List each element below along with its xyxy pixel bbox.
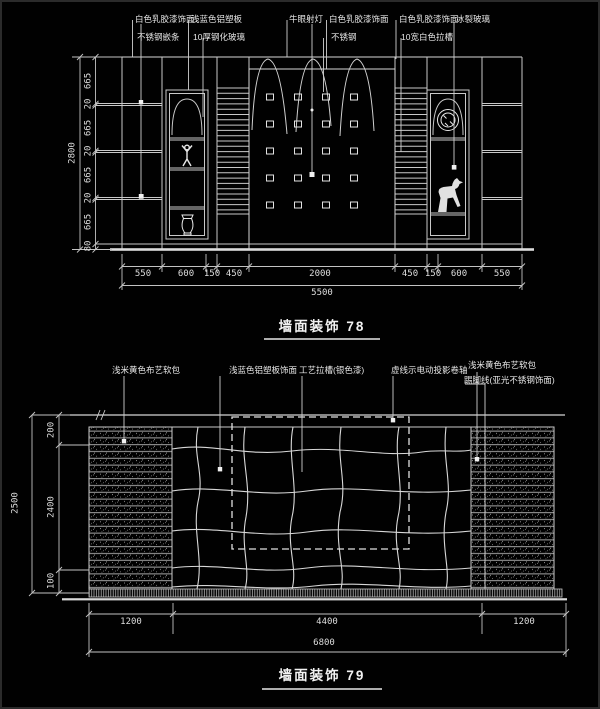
dim-78-150-right: 150 [425, 270, 441, 279]
floor-line-79 [62, 598, 567, 600]
callout-leaders-79 [124, 372, 485, 588]
dim-78-600-left: 600 [178, 270, 194, 279]
dim-78-20-3: 20 [85, 193, 94, 204]
skirting-strip [89, 589, 562, 597]
cad-drawing-canvas: 白色乳胶漆饰面 浅蓝色铝塑板 不锈钢嵌条 10厚钢化玻璃 牛眼射灯 白色乳胶漆饰… [0, 0, 600, 709]
callout-craft-groove: 工艺拉槽(银色漆) [299, 365, 364, 375]
callout-skirting: 踢脚线(亚光不锈钢饰面) [464, 375, 555, 385]
dim-78-550-left: 550 [135, 270, 151, 279]
left-display-cabinet [166, 90, 208, 239]
title-wall-78: 墙面装饰 78 [279, 319, 366, 335]
callout-white-latex-3: 白色乳胶漆饰面 [399, 14, 459, 24]
dim-78-450-left: 450 [226, 270, 242, 279]
left-fabric-panel [89, 427, 172, 589]
dim-78-total-2800: 2800 [69, 142, 78, 164]
dim-79-2400: 2400 [48, 496, 57, 518]
leader-markers-79 [122, 418, 479, 471]
figurine-icon [182, 145, 192, 166]
dim-78-665-3: 665 [85, 167, 94, 183]
dim-79-4400: 4400 [316, 618, 338, 627]
dim-78-550-right: 550 [494, 270, 510, 279]
dim-79-total-2500: 2500 [12, 492, 21, 514]
dim-78-450-right: 450 [402, 270, 418, 279]
wall-78-linework [72, 20, 534, 339]
dim-78-665-4: 665 [85, 214, 94, 230]
dim-79-200: 200 [48, 422, 57, 438]
wavy-groove-panel [172, 427, 471, 589]
callout-crackle-glass: 冰裂玻璃 [456, 14, 490, 24]
center-feature-panel [249, 59, 395, 249]
right-display-cabinet [427, 90, 469, 239]
callout-blue-alu-panel: 浅蓝色铝塑板 [191, 14, 242, 24]
right-grooved-column [395, 57, 427, 249]
dim-78-2000: 2000 [309, 270, 331, 279]
callout-blue-alu-face: 浅蓝色铝塑板饰面 [229, 365, 297, 375]
wall-79-linework [29, 372, 569, 689]
plate-icon [438, 110, 459, 131]
dim-78-20-2: 20 [85, 146, 94, 157]
dims-bottom-79 [86, 603, 569, 657]
callout-white-latex-1: 白色乳胶漆饰面 [135, 14, 195, 24]
vase-icon [182, 215, 193, 235]
dim-78-665-1: 665 [85, 73, 94, 89]
callout-white-groove: 10宽白色拉槽 [401, 32, 453, 42]
dims-left-78 [72, 54, 122, 253]
dim-79-100: 100 [48, 573, 57, 589]
callout-tempered-glass: 10厚钢化玻璃 [193, 32, 245, 42]
callout-beige-fabric-left: 浅米黄色布艺软包 [112, 365, 180, 375]
callout-spotlight: 牛眼射灯 [289, 14, 323, 24]
callout-white-latex-2: 白色乳胶漆饰面 [329, 14, 389, 24]
dim-78-665-2: 665 [85, 120, 94, 136]
dim-78-150-left: 150 [204, 270, 220, 279]
dim-78-20-1: 20 [85, 99, 94, 110]
dim-79-1200-left: 1200 [120, 618, 142, 627]
dim-78-80: 80 [85, 241, 94, 252]
callout-beige-fabric-right: 浅米黄色布艺软包 [468, 360, 536, 370]
right-fabric-panel [471, 427, 554, 589]
left-grooved-column [217, 57, 249, 249]
dim-78-total-5500: 5500 [311, 289, 333, 298]
callout-steel-strip: 不锈钢嵌条 [137, 32, 180, 42]
title-wall-79: 墙面装饰 79 [279, 668, 366, 684]
projection-screen-dashed [232, 417, 409, 549]
dim-78-600-right: 600 [451, 270, 467, 279]
dim-79-total-6800: 6800 [313, 639, 335, 648]
dims-left-79 [29, 412, 89, 596]
dim-79-1200-right: 1200 [513, 618, 535, 627]
callout-projection-roller: 虚线示电动投影卷轴 [391, 365, 468, 375]
callout-stainless: 不锈钢 [331, 32, 357, 42]
horse-icon [438, 178, 463, 212]
